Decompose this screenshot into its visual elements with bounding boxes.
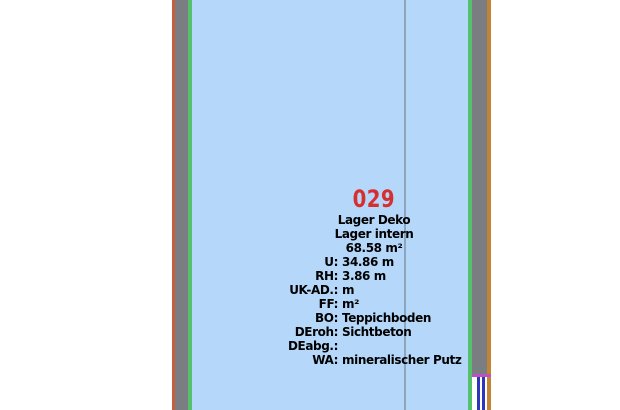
attr-value: m² [342, 297, 359, 311]
attr-value: 34.86 m [342, 255, 394, 269]
room-name-line-1: Lager Deko [254, 213, 494, 227]
room-number: 029 [353, 187, 395, 211]
room-name-line-2: Lager intern [254, 227, 494, 241]
attr-row-umfang: U: 34.86 m [254, 255, 494, 269]
attr-value: m [342, 283, 354, 297]
cad-drawing-viewport[interactable]: 029 Lager Deko Lager intern 68.58 m² U: … [0, 0, 620, 410]
wall-left-inner-edge-line [188, 0, 192, 410]
attr-value: mineralischer Putz [342, 353, 461, 367]
attr-label: BO: [254, 311, 338, 325]
attr-label: WA: [254, 353, 338, 367]
wall-left [175, 0, 188, 410]
attr-label: U: [254, 255, 338, 269]
attr-row-decke-roh: DEroh: Sichtbeton [254, 325, 494, 339]
room-area: 68.58 m² [254, 241, 494, 255]
attr-value: Sichtbeton [342, 325, 411, 339]
attr-row-boden: BO: Teppichboden [254, 311, 494, 325]
attr-label: FF: [254, 297, 338, 311]
attr-row-wand: WA: mineralischer Putz [254, 353, 494, 367]
attr-value: 3.86 m [342, 269, 386, 283]
attr-row-ff: FF: m² [254, 297, 494, 311]
room-number-wrap: 029 [254, 187, 494, 213]
attr-row-uk-ad: UK-AD.: m [254, 283, 494, 297]
attr-label: DEroh: [254, 325, 338, 339]
attr-value: Teppichboden [342, 311, 431, 325]
window-glazing-line-1 [477, 377, 480, 410]
attr-label: RH: [254, 269, 338, 283]
attr-row-raumhoehe: RH: 3.86 m [254, 269, 494, 283]
room-stamp[interactable]: 029 Lager Deko Lager intern 68.58 m² U: … [254, 187, 494, 367]
window-glazing-line-2 [482, 377, 485, 410]
attr-row-decke-abg: DEabg.: [254, 339, 494, 353]
attr-label: DEabg.: [254, 339, 338, 353]
attr-label: UK-AD.: [254, 283, 338, 297]
